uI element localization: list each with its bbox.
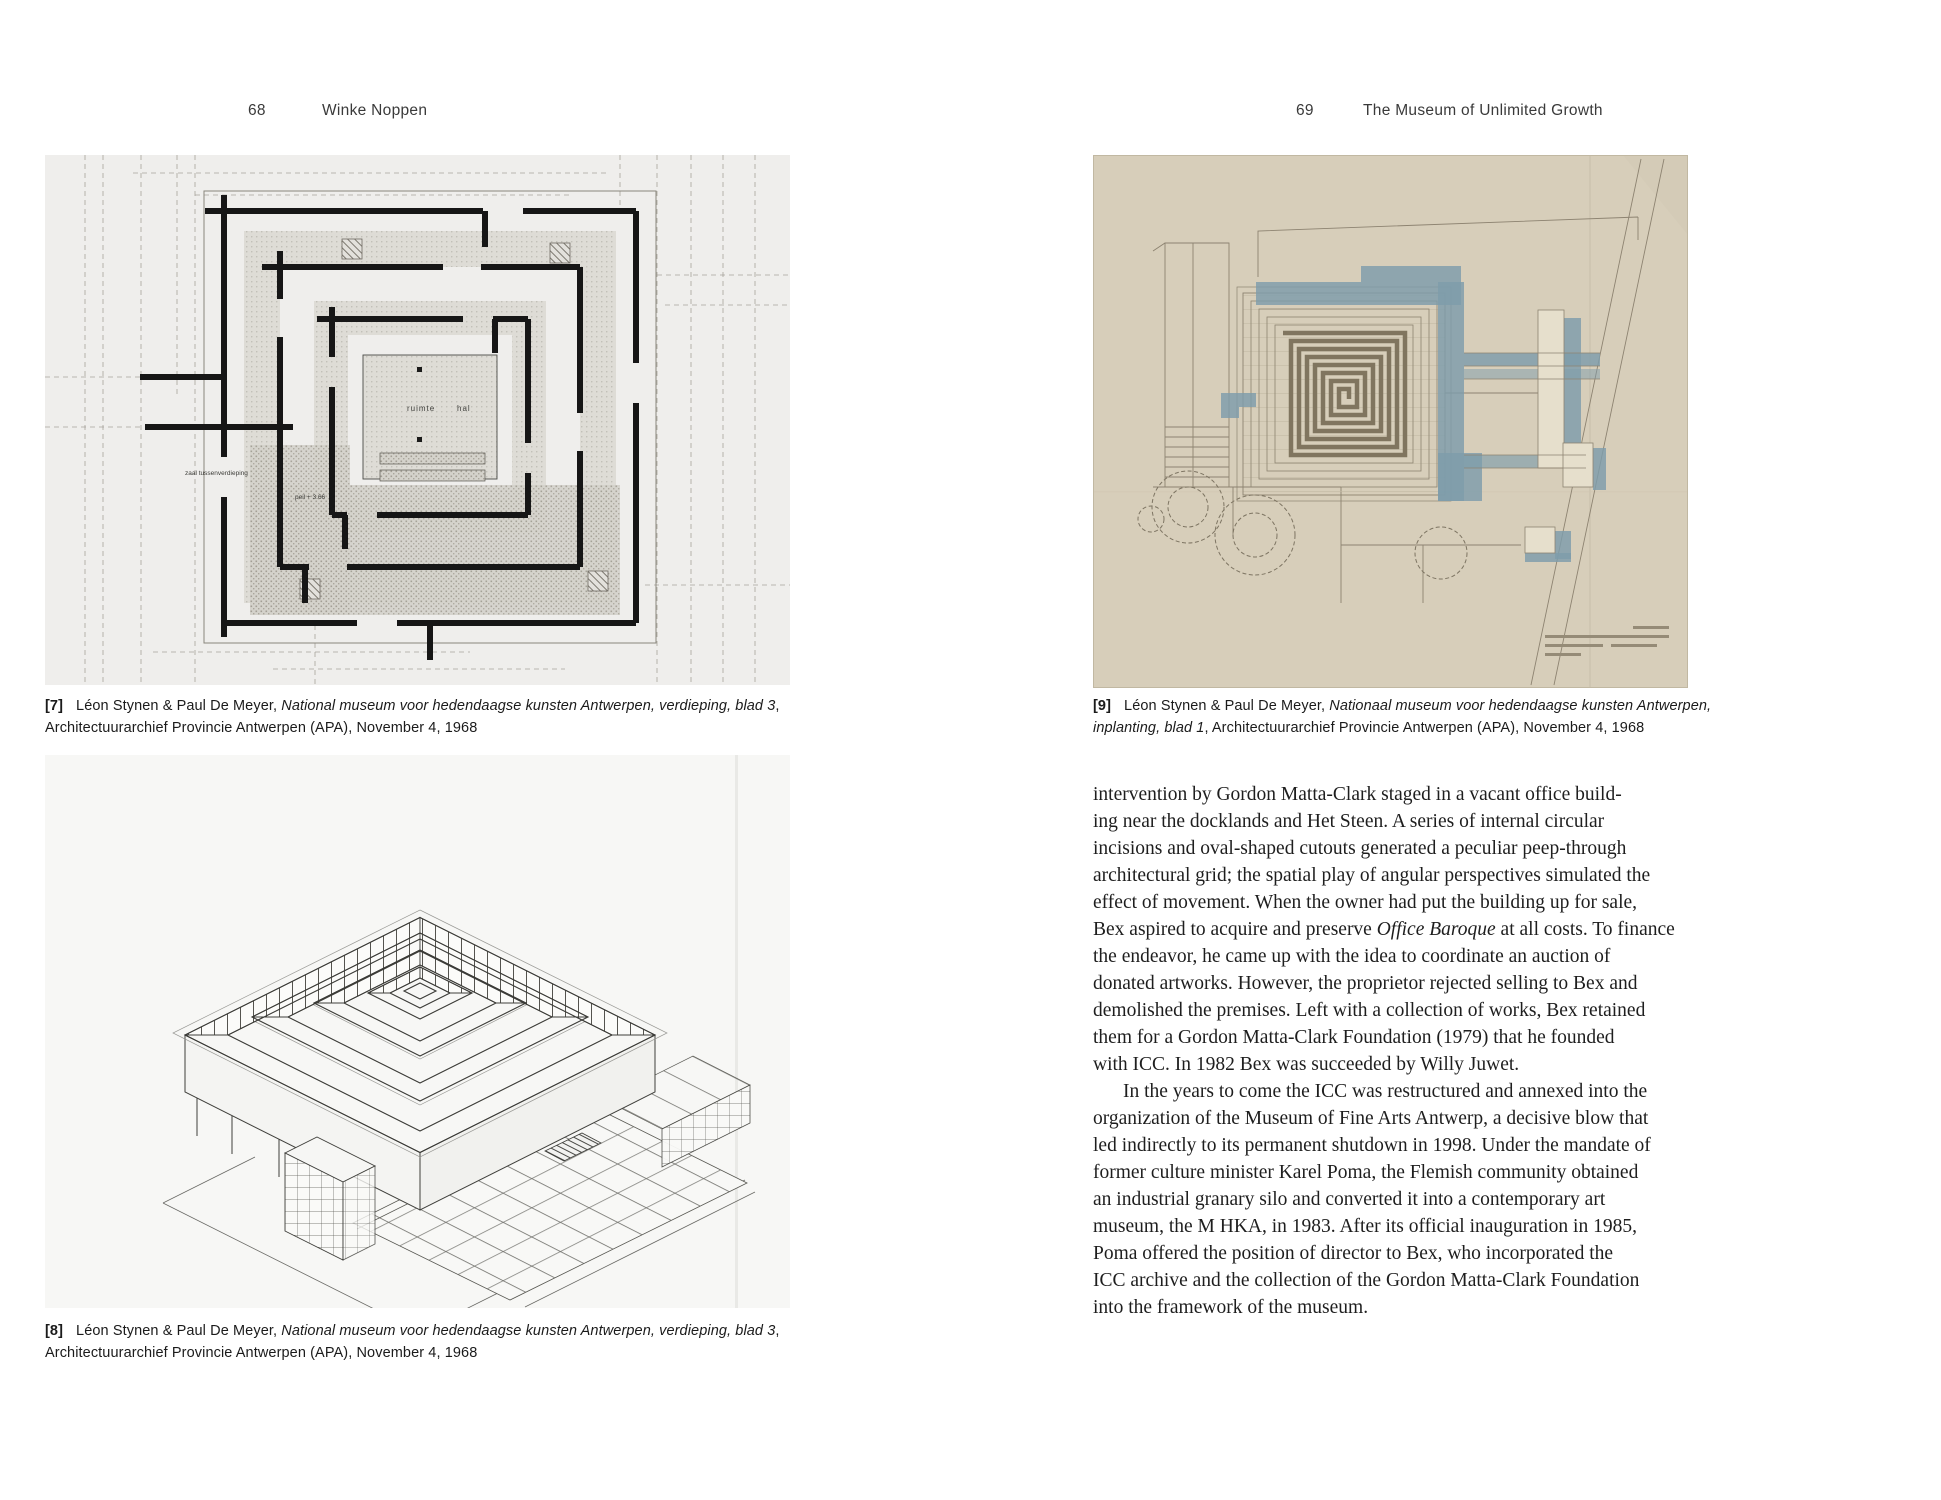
body-line: the endeavor, he came up with the idea t… <box>1093 943 1793 970</box>
figure-caption-text-italic: National museum voor hedendaagse kunsten… <box>281 698 775 714</box>
body-line: architectural grid; the spatial play of … <box>1093 862 1793 889</box>
body-line: donated artworks. However, the proprieto… <box>1093 970 1793 997</box>
figure-9-image <box>1093 155 1688 688</box>
figure-caption-text: Léon Stynen & Paul De Meyer, <box>76 698 281 714</box>
figure-caption-label: [7] <box>45 698 63 714</box>
body-line: demolished the premises. Left with a col… <box>1093 997 1793 1024</box>
left-page-number: 68 <box>248 102 266 120</box>
body-line: ing near the docklands and Het Steen. A … <box>1093 808 1793 835</box>
body-line-text: ICC archive and the collection of the Go… <box>1093 1270 1639 1291</box>
book-spread: { "left_page": { "page_number": "68", "r… <box>0 0 1941 1500</box>
body-line-text: organization of the Museum of Fine Arts … <box>1093 1108 1648 1129</box>
figure-caption-text: , Architectuurarchief Provincie Antwerpe… <box>1204 720 1644 736</box>
body-line: with ICC. In 1982 Bex was succeeded by W… <box>1093 1051 1793 1078</box>
plan-label-peil: peil + 3.66 <box>295 494 326 501</box>
body-line: ICC archive and the collection of the Go… <box>1093 1267 1793 1294</box>
body-line-text: the endeavor, he came up with the idea t… <box>1093 946 1610 967</box>
body-line: In the years to come the ICC was restruc… <box>1093 1078 1793 1105</box>
body-line: museum, the M HKA, in 1983. After its of… <box>1093 1213 1793 1240</box>
body-line-text: Bex aspired to acquire and preserve <box>1093 919 1377 940</box>
plan-label-hal: hal <box>457 404 471 413</box>
body-line: Poma offered the position of director to… <box>1093 1240 1793 1267</box>
body-line-text: demolished the premises. Left with a col… <box>1093 1000 1645 1021</box>
body-line-text: effect of movement. When the owner had p… <box>1093 892 1637 913</box>
figure-7-caption: [7]Léon Stynen & Paul De Meyer, National… <box>45 696 801 739</box>
axonometric-drawing <box>45 755 790 1308</box>
body-line: intervention by Gordon Matta-Clark stage… <box>1093 781 1793 808</box>
body-line-text: ing near the docklands and Het Steen. A … <box>1093 811 1604 832</box>
body-line-text: at all costs. To finance <box>1496 919 1675 940</box>
site-plan-drawing <box>1093 155 1688 688</box>
body-line-text: with ICC. In 1982 Bex was succeeded by W… <box>1093 1054 1519 1075</box>
body-line-text: former culture minister Karel Poma, the … <box>1093 1162 1638 1183</box>
body-line: an industrial granary silo and converted… <box>1093 1186 1793 1213</box>
plan-label-zaal: zaal tussenverdieping <box>185 470 248 477</box>
figure-caption-label: [9] <box>1093 698 1111 714</box>
plan-drawing: ruimte hal zaal tussenverdieping peil + … <box>45 155 790 685</box>
body-line-text: donated artworks. However, the proprieto… <box>1093 973 1638 994</box>
body-line-text: led indirectly to its permanent shutdown… <box>1093 1135 1651 1156</box>
body-line: effect of movement. When the owner had p… <box>1093 889 1793 916</box>
body-line-text: museum, the M HKA, in 1983. After its of… <box>1093 1216 1637 1237</box>
right-running-title: The Museum of Unlimited Growth <box>1363 102 1603 120</box>
figure-caption-text-italic: National museum voor hedendaagse kunsten… <box>281 1323 775 1339</box>
body-line-text: architectural grid; the spatial play of … <box>1093 865 1650 886</box>
body-line: them for a Gordon Matta-Clark Foundation… <box>1093 1024 1793 1051</box>
figure-8-caption: [8]Léon Stynen & Paul De Meyer, National… <box>45 1321 801 1364</box>
body-line: incisions and oval-shaped cutouts genera… <box>1093 835 1793 862</box>
body-line: Bex aspired to acquire and preserve Offi… <box>1093 916 1793 943</box>
body-line-text: an industrial granary silo and converted… <box>1093 1189 1605 1210</box>
body-line-text-italic: Office Baroque <box>1377 919 1496 940</box>
body-line-text: into the framework of the museum. <box>1093 1297 1368 1318</box>
body-line-text: Poma offered the position of director to… <box>1093 1243 1613 1264</box>
body-line: organization of the Museum of Fine Arts … <box>1093 1105 1793 1132</box>
figure-8-image <box>45 755 790 1308</box>
body-line: into the framework of the museum. <box>1093 1294 1793 1321</box>
figure-9-caption: [9]Léon Stynen & Paul De Meyer, Nationaa… <box>1093 696 1715 739</box>
body-line-text: In the years to come the ICC was restruc… <box>1123 1081 1647 1102</box>
body-line-text: incisions and oval-shaped cutouts genera… <box>1093 838 1626 859</box>
body-line: led indirectly to its permanent shutdown… <box>1093 1132 1793 1159</box>
figure-caption-text: Léon Stynen & Paul De Meyer, <box>1124 698 1329 714</box>
body-line: former culture minister Karel Poma, the … <box>1093 1159 1793 1186</box>
body-line-text: them for a Gordon Matta-Clark Foundation… <box>1093 1027 1615 1048</box>
figure-caption-label: [8] <box>45 1323 63 1339</box>
body-line-text: intervention by Gordon Matta-Clark stage… <box>1093 784 1622 805</box>
figure-7-image: ruimte hal zaal tussenverdieping peil + … <box>45 155 790 685</box>
body-text: intervention by Gordon Matta-Clark stage… <box>1093 781 1793 1321</box>
left-running-title: Winke Noppen <box>322 102 427 120</box>
figure-caption-text: Léon Stynen & Paul De Meyer, <box>76 1323 281 1339</box>
plan-label-ruimte: ruimte <box>407 404 435 413</box>
right-page-number: 69 <box>1296 102 1314 120</box>
